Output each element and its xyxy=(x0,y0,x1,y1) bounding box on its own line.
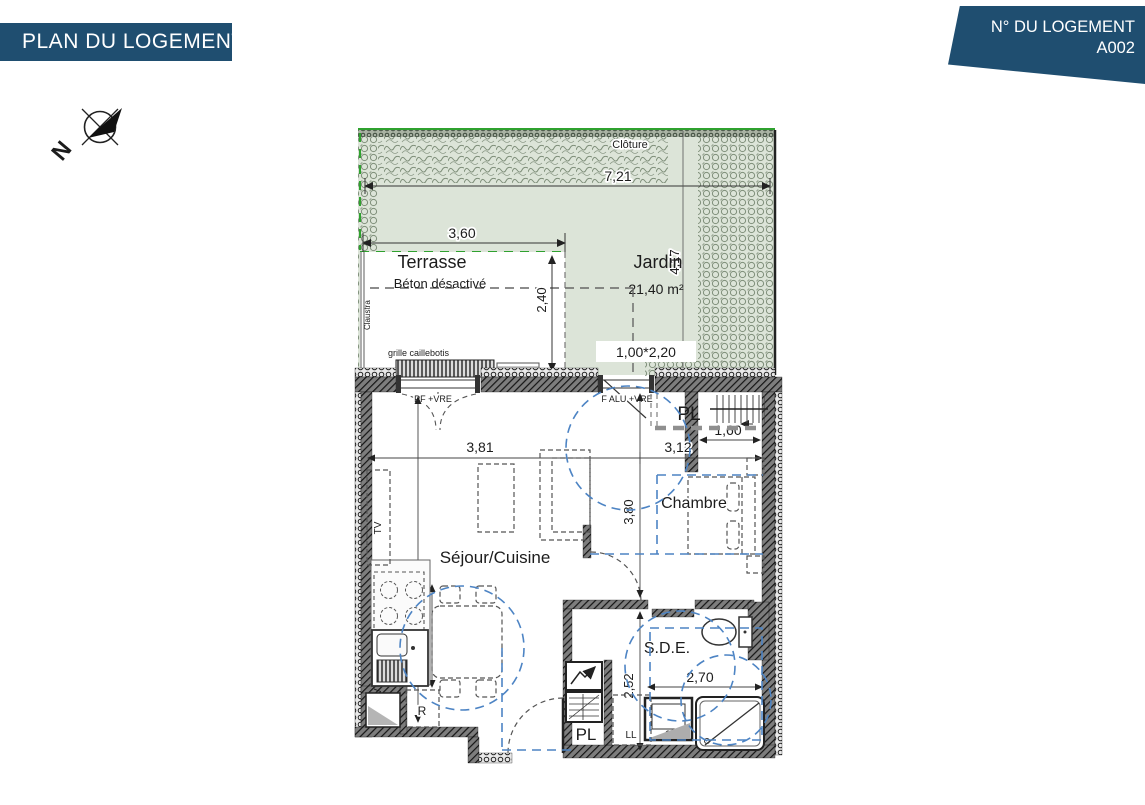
chair xyxy=(476,586,496,603)
alu-door-label: F ALU +VRE xyxy=(601,394,652,404)
floor-plan: 7,21 4,17 Clôture Jardin 21,40 m² 3,60 2… xyxy=(0,0,1145,800)
bedroom-depth-dim: 3,80 xyxy=(621,499,636,524)
living-label: Séjour/Cuisine xyxy=(440,548,551,567)
garden-label: Jardin xyxy=(633,252,682,272)
dining-table xyxy=(432,606,502,678)
coffee-table xyxy=(478,464,514,532)
terrace-width-dim: 3,60 xyxy=(448,225,475,241)
closet-top: PL xyxy=(651,394,768,428)
fridge-label: R xyxy=(418,704,427,718)
sofa xyxy=(540,450,590,540)
plan-title: PLAN DU LOGEMENT xyxy=(22,30,245,53)
nightstand xyxy=(747,556,764,573)
toilet xyxy=(702,617,752,647)
terrace-depth-dim: 2,40 xyxy=(534,287,549,312)
nightstand xyxy=(747,458,764,475)
claustra-label: Claustra xyxy=(363,300,372,330)
terrace-finish-label: Béton désactivé xyxy=(394,276,487,291)
fence-label: Clôture xyxy=(612,139,647,151)
shower xyxy=(696,697,764,750)
entry-door xyxy=(508,698,563,753)
tv-label: TV xyxy=(373,521,384,534)
unit-number-value: A002 xyxy=(948,38,1135,59)
french-door: PF +VRE xyxy=(396,375,480,430)
hedge-right xyxy=(698,137,775,365)
metal-grate xyxy=(396,360,494,377)
hall-door xyxy=(591,552,641,602)
grate-label: grille caillebotis xyxy=(388,348,450,358)
alu-window-door: F ALU +VRE xyxy=(598,375,654,418)
french-door-label: PF +VRE xyxy=(414,394,452,404)
garden-area-label: 21,40 m² xyxy=(628,281,684,297)
pillow xyxy=(727,483,739,511)
chair xyxy=(440,680,460,697)
shower-room-label: S.D.E. xyxy=(644,640,690,657)
garden-width-dim: 7,21 xyxy=(604,168,631,184)
unit-number-title: N° DU LOGEMENT xyxy=(948,17,1135,38)
dishwasher xyxy=(377,660,407,682)
north-label: N xyxy=(46,136,77,165)
living-width-dim: 3,81 xyxy=(466,439,493,455)
chair xyxy=(476,680,496,697)
gate-dim-label: 1,00*2,20 xyxy=(616,344,676,360)
plan-title-banner: PLAN DU LOGEMENT xyxy=(0,23,232,61)
bed xyxy=(688,477,755,554)
compass: N xyxy=(46,108,122,165)
washing-machine-label: LL xyxy=(625,730,637,741)
sliding-door-leaf xyxy=(652,609,694,617)
sink-bowl xyxy=(377,634,407,656)
terrace-label: Terrasse xyxy=(397,252,466,272)
pillow xyxy=(727,521,739,549)
bedroom-width-dim: 3,12 xyxy=(664,439,691,455)
closet-bottom-label: PL xyxy=(576,725,597,744)
bedroom-label: Chambre xyxy=(661,495,727,512)
